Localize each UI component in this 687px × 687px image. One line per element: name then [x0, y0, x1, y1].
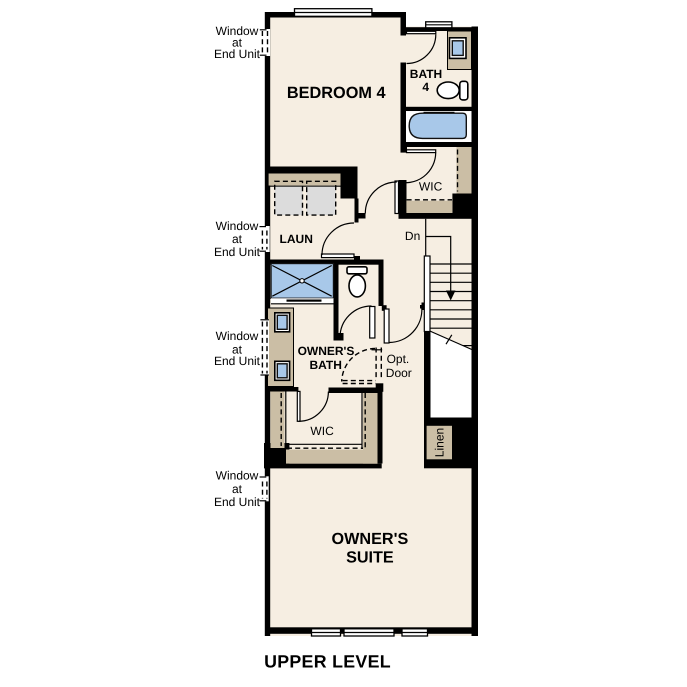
svg-text:BATH: BATH	[309, 358, 341, 372]
svg-text:Window: Window	[216, 329, 259, 343]
svg-text:BEDROOM 4: BEDROOM 4	[287, 84, 386, 102]
svg-text:Opt.: Opt.	[387, 352, 410, 366]
svg-text:WIC: WIC	[310, 424, 334, 438]
svg-text:at: at	[232, 482, 243, 496]
svg-text:Window: Window	[216, 468, 259, 482]
svg-text:Window: Window	[216, 219, 259, 233]
svg-text:SUITE: SUITE	[346, 548, 394, 566]
svg-text:End Unit: End Unit	[214, 495, 261, 509]
svg-text:Door: Door	[386, 366, 412, 380]
svg-text:Linen: Linen	[433, 428, 447, 457]
svg-text:4: 4	[422, 80, 429, 94]
svg-text:End Unit: End Unit	[214, 245, 261, 259]
svg-text:LAUN: LAUN	[280, 232, 313, 246]
svg-text:UPPER LEVEL: UPPER LEVEL	[264, 652, 391, 672]
svg-text:OWNER'S: OWNER'S	[332, 530, 409, 548]
svg-text:OWNER'S: OWNER'S	[298, 344, 355, 358]
svg-text:End Unit: End Unit	[214, 47, 261, 61]
svg-text:Dn: Dn	[405, 229, 420, 243]
svg-text:End Unit: End Unit	[214, 354, 261, 368]
svg-text:WIC: WIC	[419, 180, 443, 194]
svg-text:at: at	[232, 232, 243, 246]
